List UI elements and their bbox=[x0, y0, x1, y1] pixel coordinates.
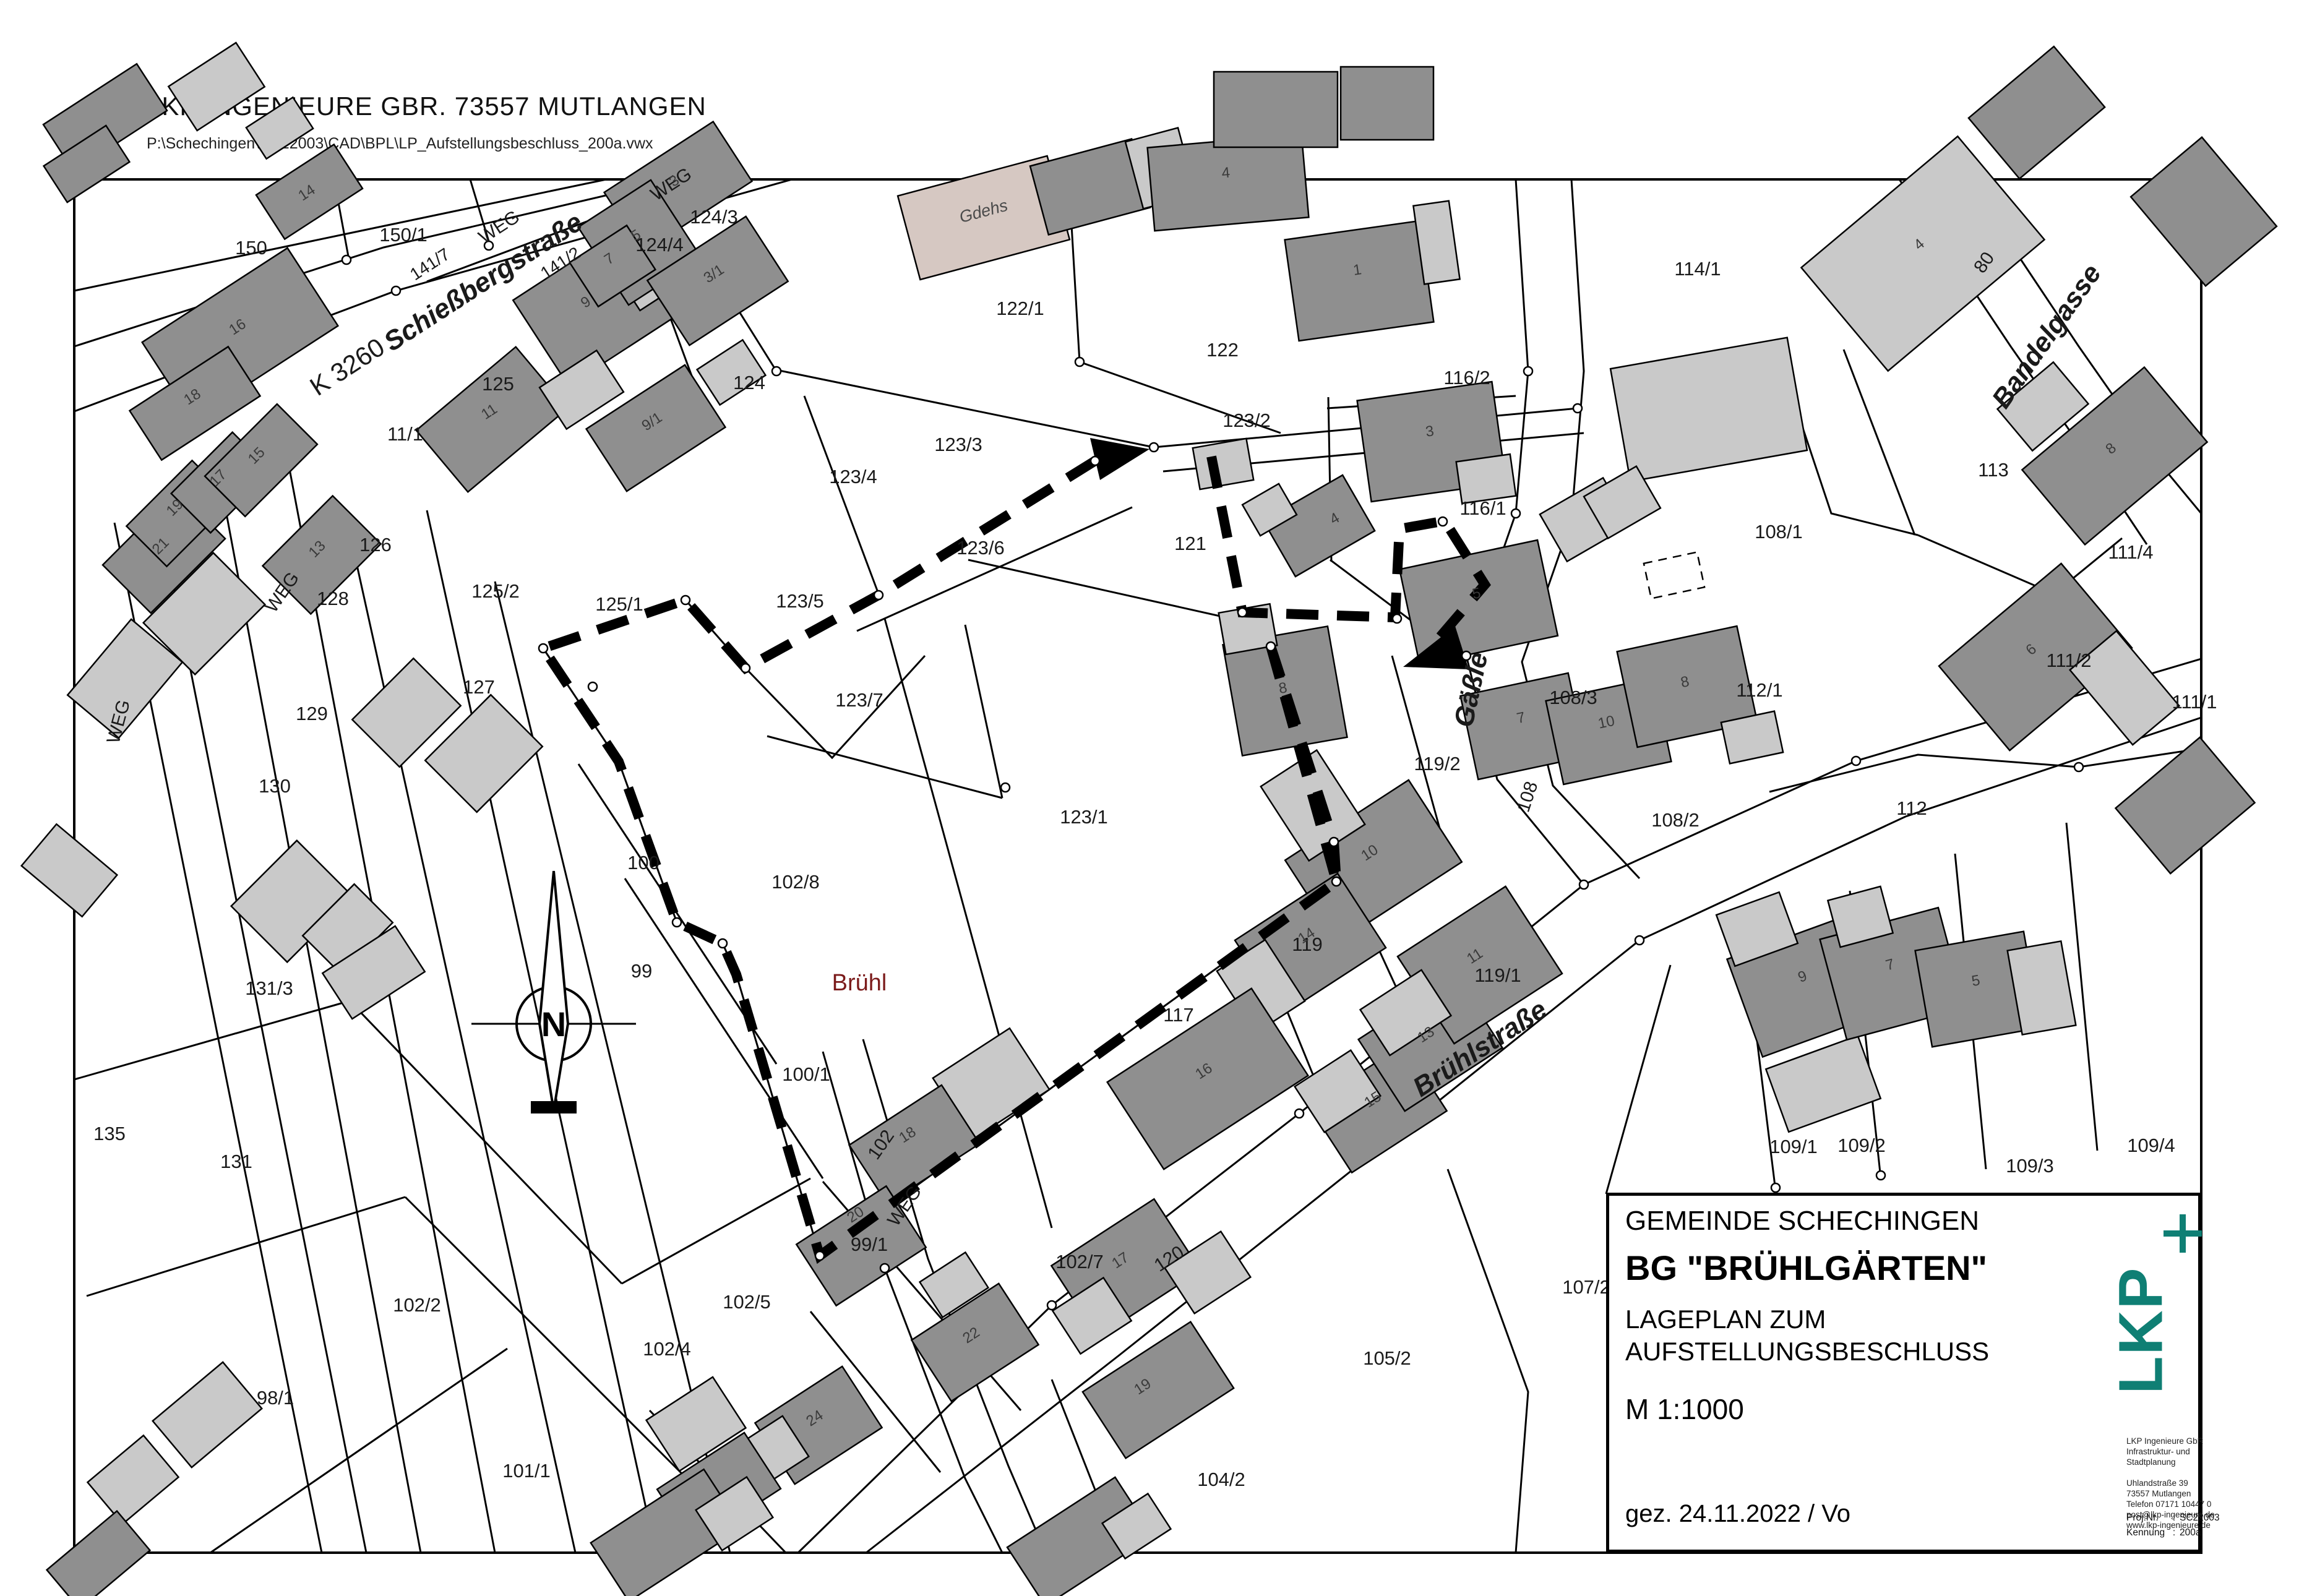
parcel-label: 108/2 bbox=[1651, 809, 1700, 831]
lkp-logo: LKP bbox=[2104, 1233, 2178, 1425]
kennung-row: Kennung : 200a bbox=[2126, 1527, 2220, 1538]
parcel-label: 123/7 bbox=[835, 689, 883, 711]
parcel-label: 108/1 bbox=[1755, 521, 1803, 543]
building bbox=[1193, 439, 1253, 489]
parcel-label: 127 bbox=[463, 676, 495, 698]
parcel-label: 119/2 bbox=[1414, 753, 1460, 774]
parcel-label: 128 bbox=[317, 588, 349, 609]
boundary-vertex bbox=[1438, 517, 1447, 526]
building bbox=[1285, 221, 1434, 341]
parcel-label: 11/1 bbox=[387, 423, 423, 445]
boundary-vertex bbox=[673, 918, 681, 927]
parcel-label: 125 bbox=[482, 373, 514, 395]
kennung-label: Kennung bbox=[2126, 1527, 2168, 1538]
building bbox=[168, 43, 264, 131]
boundary-vertex bbox=[1876, 1171, 1885, 1180]
parcel-label: 135 bbox=[93, 1123, 126, 1144]
parcel-label: 125/2 bbox=[471, 580, 520, 602]
parcel-label: 124/3 bbox=[690, 206, 738, 228]
parcel-label: 111/4 bbox=[2108, 541, 2154, 563]
boundary-vertex bbox=[1330, 838, 1338, 846]
boundary-vertex bbox=[880, 1264, 889, 1272]
boundary-vertex bbox=[1001, 783, 1010, 792]
north-label: N bbox=[541, 1005, 566, 1044]
parcel-label: 125/1 bbox=[595, 593, 643, 615]
parcel-label: 112/1 bbox=[1736, 679, 1782, 701]
parcel-label: 126 bbox=[359, 534, 392, 556]
parcel-label: 130 bbox=[259, 775, 291, 797]
boundary-vertex bbox=[1579, 880, 1588, 889]
boundary-vertex bbox=[392, 286, 400, 295]
parcel-label: 124/4 bbox=[635, 234, 684, 255]
parcel-label: 150 bbox=[235, 237, 267, 259]
lkp-logo-plus-icon bbox=[2180, 1214, 2186, 1253]
boundary-vertex bbox=[1238, 608, 1247, 617]
parcel-label: 111/1 bbox=[2172, 691, 2217, 713]
plan-type-line1: LAGEPLAN ZUM bbox=[1625, 1305, 1826, 1334]
parcel-label: 105/2 bbox=[1363, 1347, 1411, 1369]
parcel-label: 122/1 bbox=[996, 298, 1044, 319]
project-meta: Proj.Nr. : SC22003 Kennung : 200a bbox=[2126, 1512, 2220, 1542]
parcel-label: 123/3 bbox=[934, 434, 982, 455]
parcel-label: 123/2 bbox=[1223, 410, 1271, 431]
boundary-vertex bbox=[1047, 1301, 1056, 1310]
boundary-vertex bbox=[1149, 443, 1158, 452]
separator: : bbox=[2168, 1527, 2180, 1538]
parcel-label: 117 bbox=[1163, 1004, 1193, 1026]
project-number-row: Proj.Nr. : SC22003 bbox=[2126, 1512, 2220, 1524]
street-label: Brühl bbox=[832, 970, 887, 996]
parcel-label: 129 bbox=[296, 703, 328, 724]
building bbox=[1214, 72, 1338, 147]
project-number-value: SC22003 bbox=[2180, 1512, 2220, 1524]
parcel-label: 111/2 bbox=[2047, 650, 2092, 671]
parcel-label: 131 bbox=[220, 1151, 252, 1172]
parcel-label: 102/5 bbox=[723, 1291, 771, 1313]
boundary-vertex bbox=[1332, 877, 1341, 886]
parcel-label: 98/1 bbox=[257, 1387, 294, 1409]
parcel-label: 104/2 bbox=[1197, 1469, 1245, 1490]
parcel-label: 100 bbox=[627, 852, 660, 873]
parcel-label: 123/5 bbox=[776, 590, 824, 612]
parcel-label: 102/4 bbox=[643, 1338, 691, 1360]
parcel-label: 113 bbox=[1978, 459, 2008, 481]
parcel-label: 107/2 bbox=[1562, 1276, 1610, 1298]
parcel-label: 109/3 bbox=[2006, 1155, 2054, 1177]
boundary-vertex bbox=[588, 682, 597, 691]
boundary-vertex bbox=[1573, 404, 1582, 413]
parcel-label: 99 bbox=[631, 960, 652, 982]
north-arrow-base bbox=[531, 1101, 577, 1113]
parcel-label: 114/1 bbox=[1674, 258, 1721, 280]
boundary-vertex bbox=[815, 1251, 824, 1260]
parcel-label: 116/2 bbox=[1443, 367, 1490, 388]
boundary-vertex bbox=[1852, 757, 1860, 765]
project-number-label: Proj.Nr. bbox=[2126, 1512, 2168, 1524]
boundary-vertex bbox=[874, 591, 883, 599]
building bbox=[1969, 46, 2105, 179]
parcel-label: 102/8 bbox=[771, 871, 820, 893]
building bbox=[1341, 67, 1433, 140]
boundary-vertex bbox=[681, 596, 690, 604]
parcel-label: 116/1 bbox=[1459, 497, 1506, 519]
boundary-vertex bbox=[2074, 763, 2083, 771]
parcel-label: 112 bbox=[1896, 797, 1927, 819]
parcel-label: 131/3 bbox=[245, 977, 293, 999]
boundary-vertex bbox=[1091, 457, 1099, 465]
parcel-label: 119/1 bbox=[1474, 964, 1521, 986]
building bbox=[1148, 134, 1309, 231]
building bbox=[246, 97, 313, 158]
parcel-label: 109/2 bbox=[1837, 1135, 1886, 1156]
plan-type-line2: AUFSTELLUNGSBESCHLUSS bbox=[1625, 1337, 1989, 1366]
municipality-title: GEMEINDE SCHECHINGEN bbox=[1625, 1206, 1979, 1237]
parcel-label: 122 bbox=[1206, 339, 1239, 361]
parcel-label: 102/7 bbox=[1055, 1251, 1104, 1272]
parcel-label: 108/3 bbox=[1549, 687, 1597, 708]
parcel-label: 109/1 bbox=[1769, 1136, 1818, 1157]
boundary-vertex bbox=[1771, 1183, 1780, 1192]
parcel-label: 124 bbox=[733, 372, 765, 393]
parcel-label: 101/1 bbox=[502, 1460, 551, 1482]
parcel-label: 121 bbox=[1174, 533, 1206, 554]
building-number-label: 4 bbox=[1221, 164, 1231, 181]
page: LKP INGENIEURE GBR. 73557 MUTLANGEN P:\S… bbox=[0, 0, 2299, 1596]
parcel-label: 99/1 bbox=[851, 1233, 888, 1255]
boundary-vertex bbox=[539, 644, 548, 653]
boundary-vertex bbox=[342, 255, 351, 264]
parcel-label: 102/2 bbox=[393, 1294, 441, 1316]
boundary-vertex bbox=[718, 939, 727, 948]
map-scale: M 1:1000 bbox=[1625, 1392, 1744, 1426]
boundary-vertex bbox=[772, 367, 781, 375]
parcel-label: 123/1 bbox=[1060, 806, 1108, 828]
boundary-vertex bbox=[1635, 936, 1644, 945]
boundary-vertex bbox=[1266, 642, 1275, 651]
boundary-vertex bbox=[1075, 358, 1084, 366]
boundary-vertex bbox=[1524, 367, 1532, 375]
parcel-label: 123/4 bbox=[829, 466, 877, 487]
boundary-vertex bbox=[1511, 509, 1520, 518]
boundary-vertex bbox=[1295, 1109, 1304, 1118]
kennung-value: 200a bbox=[2180, 1527, 2201, 1538]
building-number-label: 10 bbox=[1597, 713, 1617, 732]
title-block: GEMEINDE SCHECHINGEN BG "BRÜHLGÄRTEN" LA… bbox=[1606, 1193, 2201, 1553]
separator: : bbox=[2168, 1512, 2180, 1524]
project-title: BG "BRÜHLGÄRTEN" bbox=[1625, 1248, 1987, 1288]
boundary-vertex bbox=[741, 664, 750, 672]
boundary-vertex bbox=[1393, 614, 1401, 623]
parcel-label: 150/1 bbox=[379, 224, 428, 246]
parcel-label: 109/4 bbox=[2127, 1135, 2175, 1156]
parcel-label: 123/6 bbox=[956, 537, 1005, 559]
date-author: gez. 24.11.2022 / Vo bbox=[1625, 1500, 1850, 1528]
building bbox=[1456, 454, 1516, 504]
parcel-label: 100/1 bbox=[782, 1063, 830, 1085]
lkp-logo-text: LKP bbox=[2106, 1235, 2177, 1427]
